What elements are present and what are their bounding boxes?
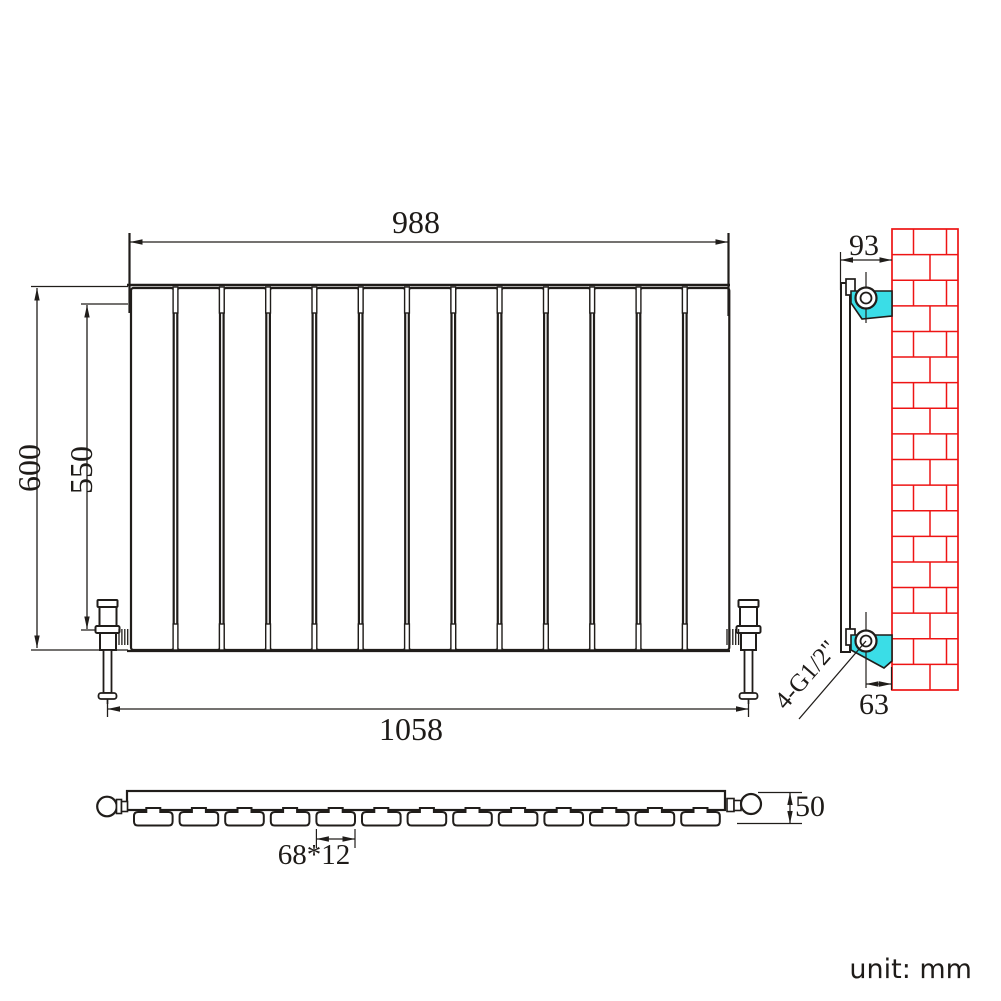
dim-overall-height-label: 600	[11, 444, 47, 492]
panel-joint-top	[590, 287, 595, 313]
radiator-panel	[501, 288, 544, 650]
right-valve-body	[741, 633, 756, 650]
dimension-arrow	[879, 681, 892, 686]
radiator-panel	[363, 288, 406, 650]
left-pipe-flange	[99, 693, 117, 699]
panel-joint-bottom	[405, 624, 410, 650]
dim-valve-span-label: 1058	[379, 711, 443, 747]
left-valve-body	[100, 633, 116, 650]
dimension-arrow	[108, 706, 121, 711]
panel-joint-bottom	[497, 624, 502, 650]
radiator-panel	[316, 288, 359, 650]
dimension-arrow	[787, 793, 792, 806]
right-valve-pipe	[745, 650, 753, 693]
right-valve-nut	[734, 801, 741, 811]
panel-joint-bottom	[590, 624, 595, 650]
radiator-panel	[548, 288, 591, 650]
top-view-right-valve	[741, 794, 761, 814]
dimension-arrow	[34, 636, 39, 649]
dimension-arrow	[84, 305, 89, 318]
dimension-arrow	[787, 811, 792, 824]
panel-joint-bottom	[358, 624, 363, 650]
panel-joint-bottom	[544, 624, 549, 650]
panel-joint-top	[636, 287, 641, 313]
dim-depth-label: 50	[795, 790, 825, 823]
panel-joint-top	[405, 287, 410, 313]
dimension-arrow	[130, 239, 143, 244]
right-valve-nut	[727, 799, 734, 812]
radiator-panel	[409, 288, 452, 650]
dim-pipe-wall-offset-label: 63	[859, 688, 889, 721]
unit-note: unit: mm	[849, 954, 972, 985]
front-view	[31, 233, 761, 717]
panel-joint-top	[219, 287, 224, 313]
dimension-arrow	[34, 288, 39, 301]
side-profile	[841, 283, 850, 652]
panel-joint-bottom	[636, 624, 641, 650]
dim-bracket-depth-label: 93	[849, 229, 879, 262]
dimension-arrow	[716, 239, 729, 244]
panel-joint-top	[451, 287, 456, 313]
radiator-panel	[270, 288, 313, 650]
radiator-panel	[177, 288, 220, 650]
panel-joint-top	[497, 287, 502, 313]
right-valve-knob	[740, 607, 757, 626]
panel-joint-top	[682, 287, 687, 313]
left-valve-nut	[122, 802, 128, 812]
left-valve-pipe	[104, 650, 112, 693]
panel-joint-top	[266, 287, 271, 313]
dimension-arrow	[866, 681, 879, 686]
right-pipe-flange	[740, 693, 758, 699]
thread-size-label: 4-G1/2"	[770, 636, 844, 715]
panel-joint-bottom	[266, 624, 271, 650]
radiator-panel	[224, 288, 267, 650]
panel-joint-top	[358, 287, 363, 313]
right-valve-cap	[739, 600, 759, 607]
left-valve-knob	[100, 607, 117, 626]
dimension-arrow	[84, 617, 89, 630]
right-valve-collar	[737, 626, 761, 633]
dim-panel-section-label: 68*12	[278, 839, 351, 871]
panel-joint-bottom	[312, 624, 317, 650]
panel-joint-top	[544, 287, 549, 313]
dimension-arrow	[880, 257, 893, 262]
dim-top-width-label: 988	[392, 204, 440, 240]
panel-joint-bottom	[219, 624, 224, 650]
radiator-panel	[455, 288, 498, 650]
radiator-panel	[131, 288, 174, 650]
left-valve-collar	[96, 626, 120, 633]
radiator-panel	[594, 288, 637, 650]
top-view-left-valve	[97, 797, 117, 817]
drawing-canvas: 988 600 550 1058 93 63 4-G1/2" 50 68*12 …	[0, 0, 1001, 1001]
panel-joint-bottom	[682, 624, 687, 650]
panel-joint-bottom	[451, 624, 456, 650]
bracket-screw-top	[856, 288, 877, 309]
dimension-arrow	[736, 706, 749, 711]
left-valve-cap	[98, 600, 118, 607]
top-view	[97, 791, 802, 848]
radiator-technical-drawing: 988 600 550 1058 93 63 4-G1/2" 50 68*12 …	[0, 0, 1001, 1001]
panel-joint-top	[173, 287, 178, 313]
panel-joint-top	[312, 287, 317, 313]
dim-panel-height-label: 550	[63, 446, 99, 494]
radiator-panel	[640, 288, 683, 650]
radiator-panel	[687, 288, 730, 650]
panel-joint-bottom	[173, 624, 178, 650]
